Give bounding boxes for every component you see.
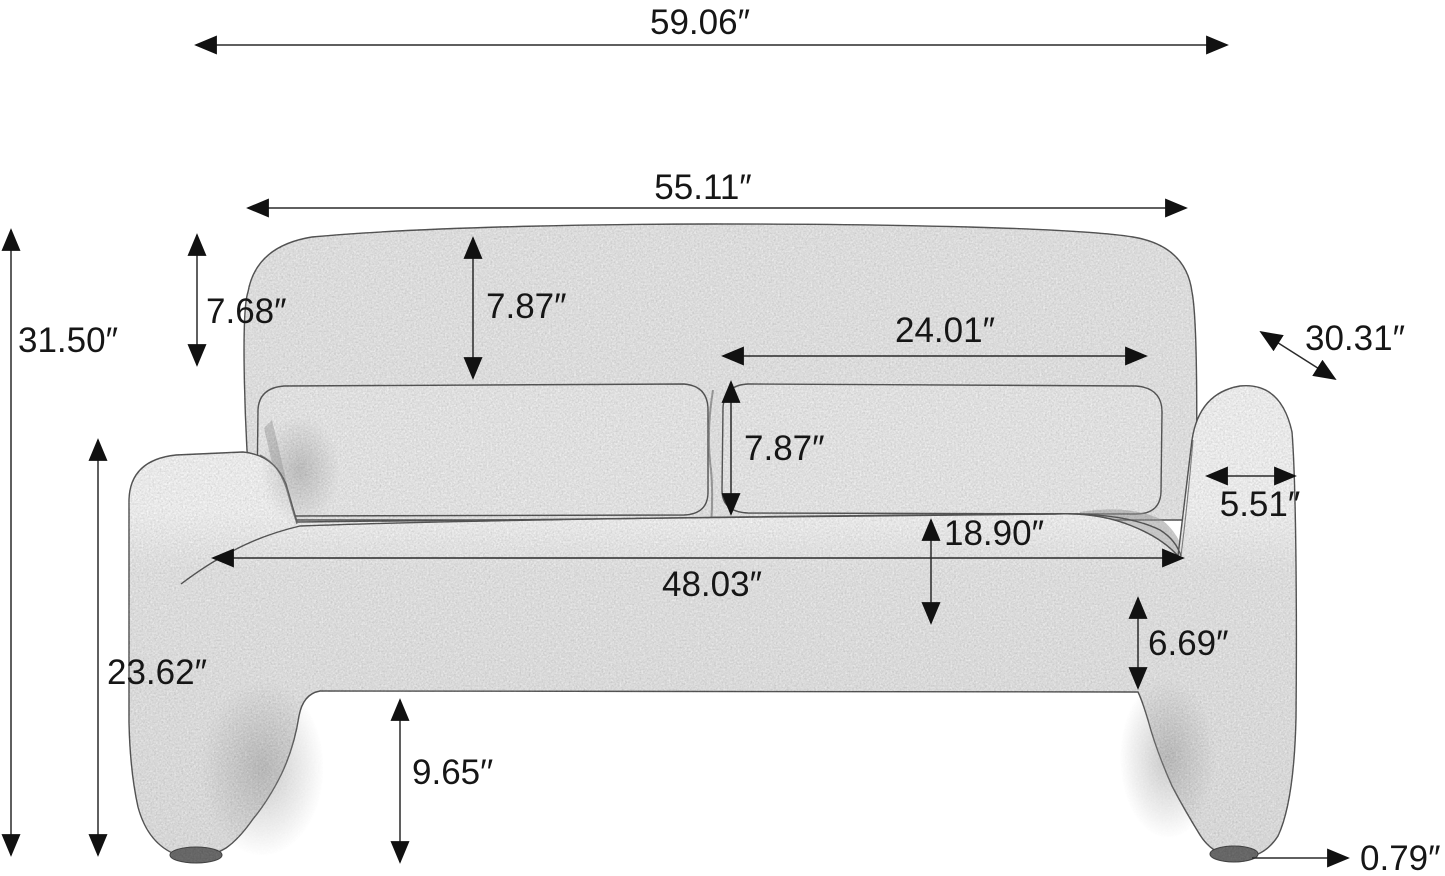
dim-leg-height-label: 9.65′′ xyxy=(412,753,493,792)
dim-foot-height: 0.79″ xyxy=(1252,839,1441,876)
dim-foot-height-label: 0.79″ xyxy=(1360,839,1441,876)
dim-headrest-height-label: 7.68″ xyxy=(206,292,287,331)
dim-back-width-label: 55.11″ xyxy=(654,168,751,207)
dim-seat-front-height-label: 6.69″ xyxy=(1148,624,1229,663)
left-foot xyxy=(170,847,222,863)
dim-back-cushion-height-label: 7.87″ xyxy=(744,429,825,468)
dim-cushion-width-label: 24.01″ xyxy=(895,311,995,350)
dim-depth-diagonal: 30.31″ xyxy=(1261,319,1405,379)
sofa-illustration xyxy=(129,224,1296,863)
dim-back-top-height-label: 7.87″ xyxy=(486,287,567,326)
dim-depth-diagonal-label: 30.31″ xyxy=(1305,319,1405,358)
left-arm-shade xyxy=(260,415,340,525)
dim-leg-height: 9.65′′ xyxy=(400,700,493,862)
left-leg-shade xyxy=(200,680,324,856)
dim-back-width: 55.11″ xyxy=(248,168,1186,208)
dimension-diagram: 59.06″ 55.11″ 31.50″ 7.68″ 7.87″ 24.01″ … xyxy=(0,0,1445,876)
dim-overall-height-label: 31.50″ xyxy=(18,321,118,360)
dim-arm-height-label: 23.62″ xyxy=(107,653,207,692)
dim-seat-depth-label: 18.90″ xyxy=(944,514,1044,553)
right-foot xyxy=(1210,846,1258,862)
right-leg-shade xyxy=(1120,678,1216,838)
dim-overall-width-label: 59.06″ xyxy=(650,3,750,42)
dim-overall-width: 59.06″ xyxy=(196,3,1227,45)
dim-arm-width-label: 5.51″ xyxy=(1220,485,1301,524)
dim-seat-width-label: 48.03″ xyxy=(662,565,762,604)
dim-overall-height: 31.50″ xyxy=(11,230,118,855)
